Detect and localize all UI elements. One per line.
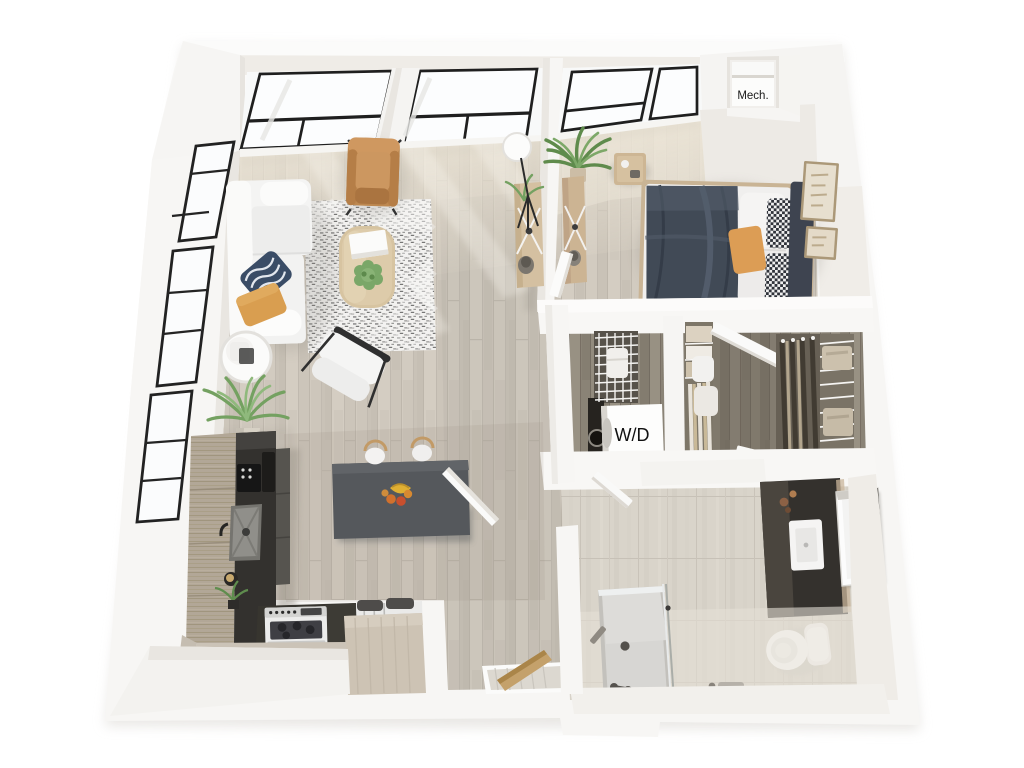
svg-text:W/D: W/D: [615, 425, 650, 445]
svg-text:Mech.: Mech.: [737, 90, 768, 102]
